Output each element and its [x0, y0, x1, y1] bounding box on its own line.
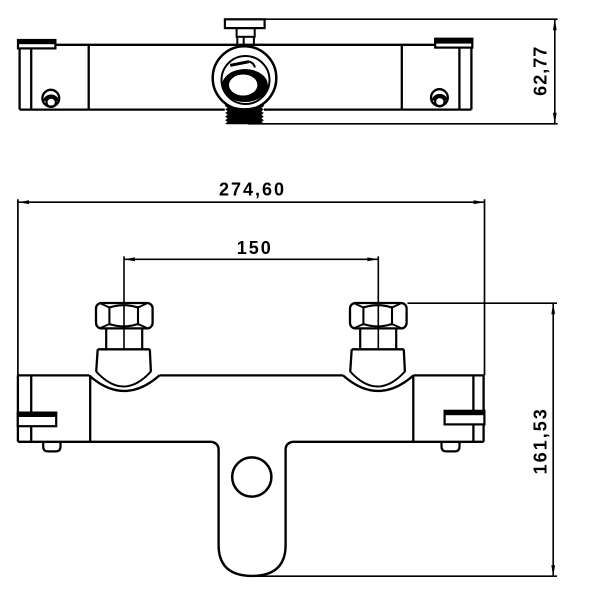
- svg-text:62,77: 62,77: [531, 46, 551, 96]
- svg-text:161,53: 161,53: [531, 407, 551, 474]
- svg-text:274,60: 274,60: [219, 180, 286, 200]
- svg-text:150: 150: [237, 238, 273, 258]
